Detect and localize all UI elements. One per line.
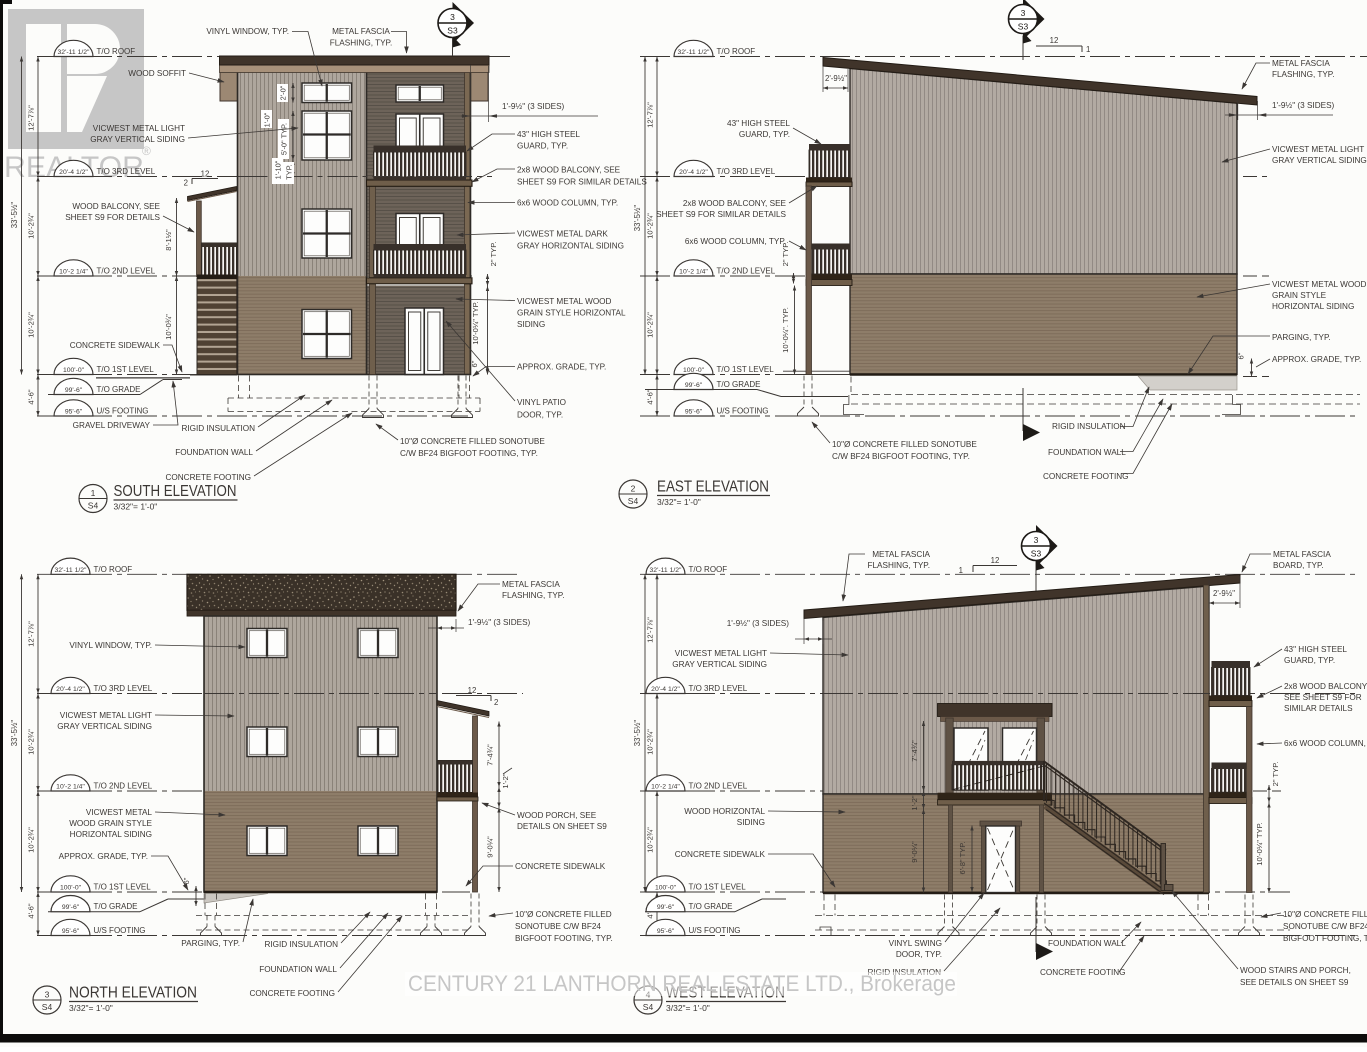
svg-text:100'-0": 100'-0" [63,367,85,374]
svg-text:99'-6": 99'-6" [65,387,83,394]
svg-text:99'-6": 99'-6" [657,904,675,911]
svg-text:7'-4¾": 7'-4¾" [486,744,495,766]
svg-text:4'-6": 4'-6" [27,389,36,404]
svg-text:®: ® [142,144,151,158]
svg-text:NORTH ELEVATION: NORTH ELEVATION [69,985,197,1002]
svg-text:10'-2 1/4": 10'-2 1/4" [59,269,88,276]
svg-text:2" TYP.: 2" TYP. [489,242,498,267]
svg-text:T/O 2ND LEVEL: T/O 2ND LEVEL [97,267,156,276]
svg-text:APPROX. GRADE, TYP.: APPROX. GRADE, TYP. [59,852,148,861]
svg-text:METAL FASCIA: METAL FASCIA [872,550,930,559]
svg-text:6x6 WOOD COLUMN, TYP.: 6x6 WOOD COLUMN, TYP. [1284,739,1367,748]
svg-text:10'-2¾": 10'-2¾" [27,729,36,755]
svg-text:VICWEST METAL: VICWEST METAL [86,808,153,817]
svg-text:2: 2 [184,179,188,188]
svg-text:VICWEST METAL DARK: VICWEST METAL DARK [517,230,608,239]
svg-text:GRAY VERTICAL SIDING: GRAY VERTICAL SIDING [90,135,185,144]
svg-text:T/O 3RD LEVEL: T/O 3RD LEVEL [94,684,153,693]
svg-text:CONCRETE SIDEWALK: CONCRETE SIDEWALK [515,862,606,871]
svg-text:U/S FOOTING: U/S FOOTING [97,407,149,416]
svg-text:12: 12 [201,170,210,179]
svg-text:T/O GRADE: T/O GRADE [97,385,141,394]
svg-text:SHEET S9 FOR SIMILAR DETAILS: SHEET S9 FOR SIMILAR DETAILS [656,210,786,219]
svg-text:10'-2 1/4": 10'-2 1/4" [56,784,85,791]
svg-text:GRAIN STYLE HORIZONTAL: GRAIN STYLE HORIZONTAL [517,309,626,318]
svg-text:METAL FASCIA: METAL FASCIA [502,580,560,589]
svg-text:RIGID INSULATION: RIGID INSULATION [1052,422,1126,431]
svg-text:T/O 1ST LEVEL: T/O 1ST LEVEL [94,883,152,892]
svg-text:S4: S4 [628,496,639,506]
svg-text:WOOD PORCH, SEE: WOOD PORCH, SEE [517,811,597,820]
svg-text:T/O 3RD LEVEL: T/O 3RD LEVEL [717,167,776,176]
svg-text:BIGFOOT FOOTING, TYP.: BIGFOOT FOOTING, TYP. [1283,934,1367,943]
svg-text:95'-6": 95'-6" [62,928,80,935]
svg-text:10"Ø CONCRETE FILLED: 10"Ø CONCRETE FILLED [515,910,612,919]
svg-text:T/O GRADE: T/O GRADE [717,380,761,389]
svg-text:S4: S4 [643,1002,654,1012]
svg-text:VICWEST METAL LIGHT: VICWEST METAL LIGHT [93,124,185,133]
svg-text:32'-11 1/2": 32'-11 1/2" [55,567,88,574]
svg-text:3: 3 [1034,535,1039,545]
svg-text:T/O 1ST LEVEL: T/O 1ST LEVEL [689,883,747,892]
svg-text:T/O 2ND LEVEL: T/O 2ND LEVEL [689,782,748,791]
svg-text:99'-6": 99'-6" [685,382,703,389]
svg-text:T/O 2ND LEVEL: T/O 2ND LEVEL [94,782,153,791]
svg-text:10'-2 1/4": 10'-2 1/4" [651,784,680,791]
svg-text:10"Ø CONCRETE FILLED: 10"Ø CONCRETE FILLED [1283,910,1367,919]
svg-text:VICWEST METAL LIGHT: VICWEST METAL LIGHT [675,649,767,658]
svg-text:43" HIGH STEEL: 43" HIGH STEEL [1284,645,1347,654]
svg-text:1'-9½" (3 SIDES): 1'-9½" (3 SIDES) [502,102,565,111]
svg-text:3/32"= 1'-0": 3/32"= 1'-0" [657,497,701,507]
svg-text:EAST ELEVATION: EAST ELEVATION [657,479,769,496]
svg-text:12'-7⅞": 12'-7⅞" [646,617,655,643]
svg-text:43" HIGH STEEL: 43" HIGH STEEL [517,130,580,139]
svg-text:32'-11 1/2": 32'-11 1/2" [678,49,711,56]
svg-text:6'-8" TYP.: 6'-8" TYP. [958,842,967,875]
svg-text:33'-5½": 33'-5½" [633,205,642,232]
svg-text:SHEET S9 FOR DETAILS: SHEET S9 FOR DETAILS [65,213,160,222]
svg-text:VICWEST METAL WOOD: VICWEST METAL WOOD [517,297,612,306]
svg-text:DOOR, TYP.: DOOR, TYP. [896,950,942,959]
svg-text:1'-9½" (3 SIDES): 1'-9½" (3 SIDES) [468,618,531,627]
svg-text:U/S FOOTING: U/S FOOTING [689,926,741,935]
svg-text:TYP.: TYP. [285,164,294,179]
svg-text:4'-6": 4'-6" [646,389,655,404]
svg-text:10'-2¾": 10'-2¾" [646,312,655,338]
svg-text:FOUNDATION WALL: FOUNDATION WALL [175,448,253,457]
svg-text:12: 12 [1050,36,1059,45]
svg-text:FLASHING, TYP.: FLASHING, TYP. [1272,70,1335,79]
svg-text:3: 3 [450,12,455,22]
svg-text:2'-0": 2'-0" [279,85,288,100]
svg-text:6": 6" [470,360,479,367]
svg-text:2'-9½": 2'-9½" [825,74,847,83]
svg-text:1'-2": 1'-2" [910,795,919,810]
svg-text:T/O ROOF: T/O ROOF [94,565,133,574]
svg-text:100'-0": 100'-0" [655,885,677,892]
svg-text:3/32"= 1'-0": 3/32"= 1'-0" [69,1003,113,1013]
svg-text:T/O 2ND LEVEL: T/O 2ND LEVEL [717,267,776,276]
svg-text:T/O GRADE: T/O GRADE [689,902,733,911]
svg-text:SHEET S9 FOR SIMILAR DETAILS: SHEET S9 FOR SIMILAR DETAILS [517,178,647,187]
svg-text:CONCRETE FOOTING: CONCRETE FOOTING [1040,968,1126,977]
svg-text:10'-2¾": 10'-2¾" [27,827,36,853]
svg-text:CONCRETE SIDEWALK: CONCRETE SIDEWALK [70,341,161,350]
svg-text:APPROX. GRADE, TYP.: APPROX. GRADE, TYP. [517,363,606,372]
svg-text:SIDING: SIDING [737,818,765,827]
svg-text:12'-7⅞": 12'-7⅞" [646,102,655,128]
svg-text:10'-2¾": 10'-2¾" [27,312,36,338]
svg-text:2x8 WOOD BALCONY, SEE: 2x8 WOOD BALCONY, SEE [683,199,787,208]
svg-text:T/O 1ST LEVEL: T/O 1ST LEVEL [717,365,775,374]
svg-text:1: 1 [91,488,96,498]
svg-text:10'-2 1/4": 10'-2 1/4" [679,269,708,276]
svg-text:GRAIN STYLE: GRAIN STYLE [1272,291,1327,300]
svg-text:4'-6": 4'-6" [27,903,36,918]
svg-text:WOOD HORIZONTAL: WOOD HORIZONTAL [684,807,765,816]
svg-text:3/32"= 1'-0": 3/32"= 1'-0" [114,502,158,512]
svg-text:RIGID INSULATION: RIGID INSULATION [264,940,338,949]
svg-text:10'-0¼" TYP.: 10'-0¼" TYP. [1255,822,1264,866]
svg-text:2: 2 [494,698,498,707]
svg-text:GRAY VERTICAL SIDING: GRAY VERTICAL SIDING [672,660,767,669]
svg-text:10"Ø CONCRETE FILLED SONOTUBE: 10"Ø CONCRETE FILLED SONOTUBE [400,437,545,446]
svg-text:10'-2¾": 10'-2¾" [27,213,36,239]
svg-text:CONCRETE FOOTING: CONCRETE FOOTING [165,473,251,482]
svg-text:APPROX. GRADE, TYP.: APPROX. GRADE, TYP. [1272,355,1361,364]
svg-text:C/W BF24 BIGFOOT FOOTING, TYP.: C/W BF24 BIGFOOT FOOTING, TYP. [832,452,970,461]
svg-text:SEE SHEET S9 FOR: SEE SHEET S9 FOR [1284,693,1362,702]
svg-text:WOOD BALCONY, SEE: WOOD BALCONY, SEE [72,202,160,211]
svg-text:43" HIGH STEEL: 43" HIGH STEEL [727,119,790,128]
svg-text:3: 3 [1021,8,1026,18]
svg-text:3/32"= 1'-0": 3/32"= 1'-0" [666,1003,710,1013]
svg-text:T/O ROOF: T/O ROOF [689,565,728,574]
svg-text:VICWEST METAL LIGHT: VICWEST METAL LIGHT [60,711,152,720]
svg-text:CONCRETE SIDEWALK: CONCRETE SIDEWALK [675,850,766,859]
svg-text:WOOD SOFFIT: WOOD SOFFIT [128,69,186,78]
svg-text:32'-11 1/2": 32'-11 1/2" [58,49,91,56]
svg-text:T/O ROOF: T/O ROOF [97,47,136,56]
svg-text:1'-2": 1'-2" [501,773,510,788]
svg-text:S4: S4 [42,1002,53,1012]
svg-text:6": 6" [1237,352,1246,359]
svg-text:VICWEST METAL WOOD: VICWEST METAL WOOD [1272,280,1367,289]
svg-text:VINYL WINDOW, TYP.: VINYL WINDOW, TYP. [206,27,289,36]
svg-text:95'-6": 95'-6" [657,928,675,935]
svg-text:3: 3 [45,990,50,1000]
svg-text:S3: S3 [447,26,458,36]
svg-text:GRAY HORIZONTAL SIDING: GRAY HORIZONTAL SIDING [517,242,624,251]
svg-text:12'-7⅞": 12'-7⅞" [27,621,36,647]
svg-text:RIGID INSULATION: RIGID INSULATION [181,424,255,433]
svg-text:10'-0¼". TYP.: 10'-0¼". TYP. [781,307,790,353]
svg-text:20'-4 1/2": 20'-4 1/2" [651,686,680,693]
svg-text:T/O ROOF: T/O ROOF [717,47,756,56]
svg-text:33'-5½": 33'-5½" [10,202,19,229]
svg-text:GRAY VERTICAL SIDING: GRAY VERTICAL SIDING [57,722,152,731]
svg-text:10'-2¾": 10'-2¾" [646,827,655,853]
svg-text:20'-4 1/2": 20'-4 1/2" [59,169,88,176]
svg-text:1: 1 [959,566,963,575]
svg-text:GUARD, TYP.: GUARD, TYP. [517,142,568,151]
svg-text:C/W BF24 BIGFOOT FOOTING, TYP.: C/W BF24 BIGFOOT FOOTING, TYP. [400,449,538,458]
svg-text:DETAILS ON SHEET S9: DETAILS ON SHEET S9 [517,822,607,831]
svg-text:FLASHING, TYP.: FLASHING, TYP. [502,591,565,600]
svg-text:20'-4 1/2": 20'-4 1/2" [56,686,85,693]
svg-text:FOUNDATION WALL: FOUNDATION WALL [259,965,337,974]
svg-text:METAL FASCIA: METAL FASCIA [332,27,390,36]
svg-text:S3: S3 [1018,22,1029,32]
svg-text:2" TYP.: 2" TYP. [1271,762,1280,787]
svg-text:5'-0" TYP.: 5'-0" TYP. [280,123,289,155]
svg-text:20'-4 1/2": 20'-4 1/2" [679,169,708,176]
svg-text:S3: S3 [1031,549,1042,559]
svg-text:12: 12 [468,686,477,695]
svg-text:2'-9½": 2'-9½" [1213,589,1235,598]
svg-text:10"Ø CONCRETE FILLED SONOTUBE: 10"Ø CONCRETE FILLED SONOTUBE [832,440,977,449]
svg-text:HORIZONTAL SIDING: HORIZONTAL SIDING [70,830,152,839]
svg-text:SIDING: SIDING [517,320,545,329]
svg-text:CENTURY 21 LANTHORN REAL ESTAT: CENTURY 21 LANTHORN REAL ESTATE LTD., Br… [408,971,956,996]
svg-text:2x8 WOOD BALCONY, SEE: 2x8 WOOD BALCONY, SEE [517,166,621,175]
svg-text:T/O 3RD LEVEL: T/O 3RD LEVEL [97,167,156,176]
svg-text:6x6 WOOD COLUMN, TYP.: 6x6 WOOD COLUMN, TYP. [685,237,786,246]
svg-text:GRAVEL DRIVEWAY: GRAVEL DRIVEWAY [73,421,151,430]
svg-text:33'-5½": 33'-5½" [633,720,642,747]
svg-text:8'-1½": 8'-1½" [164,229,173,251]
svg-text:99'-6": 99'-6" [62,904,80,911]
svg-text:1'-9½" (3 SIDES): 1'-9½" (3 SIDES) [727,619,790,628]
svg-text:WOOD STAIRS AND PORCH,: WOOD STAIRS AND PORCH, [1240,966,1351,975]
svg-text:12'-7⅞": 12'-7⅞" [27,105,36,131]
svg-text:PARGING, TYP.: PARGING, TYP. [1272,333,1331,342]
svg-text:10'-2¾": 10'-2¾" [646,213,655,239]
svg-text:95'-6": 95'-6" [685,409,703,416]
svg-text:FOUNDATION WALL: FOUNDATION WALL [1048,939,1126,948]
svg-text:1'-0": 1'-0" [263,112,272,127]
svg-text:2: 2 [631,484,636,494]
svg-text:SONOTUBE C/W BF24: SONOTUBE C/W BF24 [1283,922,1367,931]
svg-text:VINYL PATIO: VINYL PATIO [517,398,566,407]
svg-text:33'-5½": 33'-5½" [10,720,19,747]
svg-text:FOUNDATION WALL: FOUNDATION WALL [1048,448,1126,457]
svg-text:T/O GRADE: T/O GRADE [94,902,138,911]
svg-text:T/O 3RD LEVEL: T/O 3RD LEVEL [689,684,748,693]
svg-text:12: 12 [991,556,1000,565]
svg-text:SONOTUBE C/W BF24: SONOTUBE C/W BF24 [515,922,601,931]
svg-text:VINYL WINDOW, TYP.: VINYL WINDOW, TYP. [69,641,152,650]
svg-text:METAL FASCIA: METAL FASCIA [1272,59,1330,68]
svg-text:S4: S4 [88,501,99,511]
svg-text:CONCRETE FOOTING: CONCRETE FOOTING [1043,472,1129,481]
svg-text:CONCRETE FOOTING: CONCRETE FOOTING [249,989,335,998]
svg-text:BOARD, TYP.: BOARD, TYP. [1273,561,1324,570]
svg-text:100'-0": 100'-0" [60,885,82,892]
svg-text:SIMILAR DETAILS: SIMILAR DETAILS [1284,704,1353,713]
svg-text:7'-4¾": 7'-4¾" [910,740,919,762]
svg-text:SEE DETAILS ON SHEET S9: SEE DETAILS ON SHEET S9 [1240,978,1349,987]
svg-text:2x8 WOOD BALCONY,: 2x8 WOOD BALCONY, [1284,682,1367,691]
svg-text:VINYL SWING: VINYL SWING [889,939,942,948]
svg-text:GUARD, TYP.: GUARD, TYP. [1284,656,1335,665]
svg-text:U/S FOOTING: U/S FOOTING [94,926,146,935]
svg-text:1: 1 [1086,45,1090,54]
svg-text:HORIZONTAL SIDING: HORIZONTAL SIDING [1272,302,1354,311]
svg-text:6x6 WOOD COLUMN, TYP.: 6x6 WOOD COLUMN, TYP. [517,199,618,208]
svg-text:2" TYP.: 2" TYP. [781,242,790,267]
svg-text:SOUTH ELEVATION: SOUTH ELEVATION [114,483,237,500]
svg-text:95'-6": 95'-6" [65,409,83,416]
svg-text:10'-2¾": 10'-2¾" [646,729,655,755]
svg-text:T/O 1ST LEVEL: T/O 1ST LEVEL [97,365,155,374]
svg-text:10'-0¾": 10'-0¾" [164,314,173,340]
svg-text:DOOR, TYP.: DOOR, TYP. [517,411,563,420]
svg-text:GUARD, TYP.: GUARD, TYP. [739,130,790,139]
svg-text:FLASHING, TYP.: FLASHING, TYP. [868,561,931,570]
svg-text:10'-0¼" TYP.: 10'-0¼" TYP. [471,301,480,345]
svg-text:9'-0¼": 9'-0¼" [910,841,919,863]
svg-text:U/S FOOTING: U/S FOOTING [717,407,769,416]
svg-text:1'-9½" (3 SIDES): 1'-9½" (3 SIDES) [1272,101,1335,110]
svg-text:FLASHING, TYP.: FLASHING, TYP. [330,39,393,48]
svg-text:VICWEST METAL LIGHT: VICWEST METAL LIGHT [1272,145,1364,154]
svg-text:1'-10": 1'-10" [274,160,283,179]
svg-text:9'-0¼": 9'-0¼" [486,836,495,858]
svg-text:PARGING, TYP.: PARGING, TYP. [181,939,240,948]
svg-text:WOOD GRAIN STYLE: WOOD GRAIN STYLE [69,819,152,828]
svg-text:6": 6" [182,877,191,884]
svg-text:GRAY VERTICAL SIDING: GRAY VERTICAL SIDING [1272,156,1367,165]
svg-text:METAL FASCIA: METAL FASCIA [1273,550,1331,559]
svg-text:BIGFOOT FOOTING, TYP.: BIGFOOT FOOTING, TYP. [515,934,613,943]
svg-text:32'-11 1/2": 32'-11 1/2" [650,567,683,574]
